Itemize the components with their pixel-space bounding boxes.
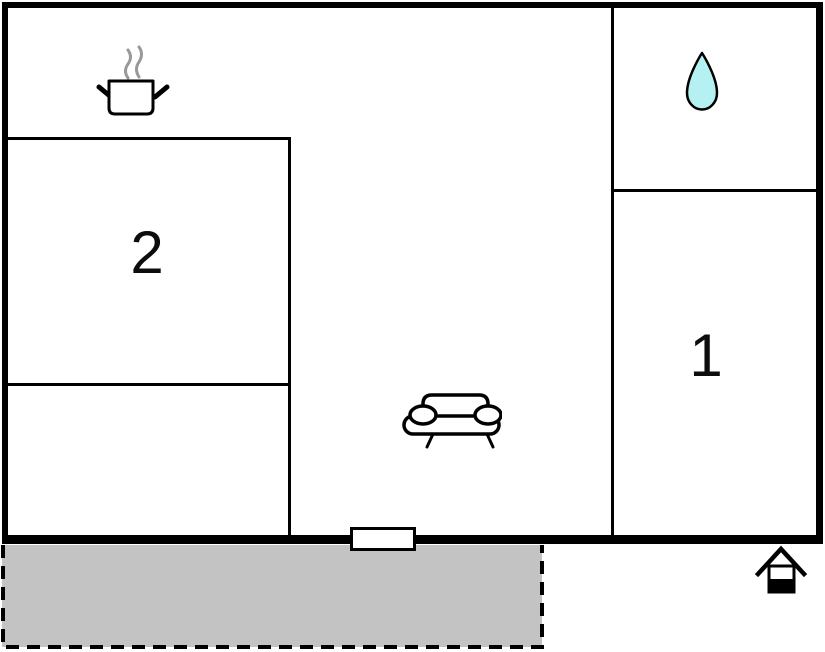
pot-handle-right	[155, 87, 167, 97]
wall-bathroom-divider	[612, 189, 818, 192]
house-base	[769, 579, 794, 592]
sofa-leg-right	[487, 434, 493, 447]
sofa-icon	[402, 390, 502, 450]
water-drop-icon	[682, 50, 722, 112]
house-entrance-icon	[752, 543, 810, 595]
floor-plan: 1 2	[0, 0, 825, 652]
pot-body	[109, 81, 153, 114]
sofa-armrest-left	[410, 406, 436, 424]
terrace-area	[0, 537, 552, 652]
wall-room2-top	[6, 137, 291, 140]
sofa-armrest-right	[475, 406, 501, 424]
wall-right-section	[611, 6, 614, 535]
steam-line	[137, 47, 142, 77]
wall-room2-right	[288, 137, 291, 535]
room-label-1: 1	[689, 326, 722, 386]
cooking-pot-icon	[93, 40, 173, 118]
water-drop-shape	[687, 53, 717, 110]
terrace-fill	[2, 545, 542, 647]
sofa-leg-left	[427, 434, 433, 447]
room-label-2: 2	[130, 223, 163, 283]
window-door-marker	[350, 527, 416, 551]
wall-room2-divider	[6, 383, 291, 386]
steam-line	[126, 50, 131, 78]
